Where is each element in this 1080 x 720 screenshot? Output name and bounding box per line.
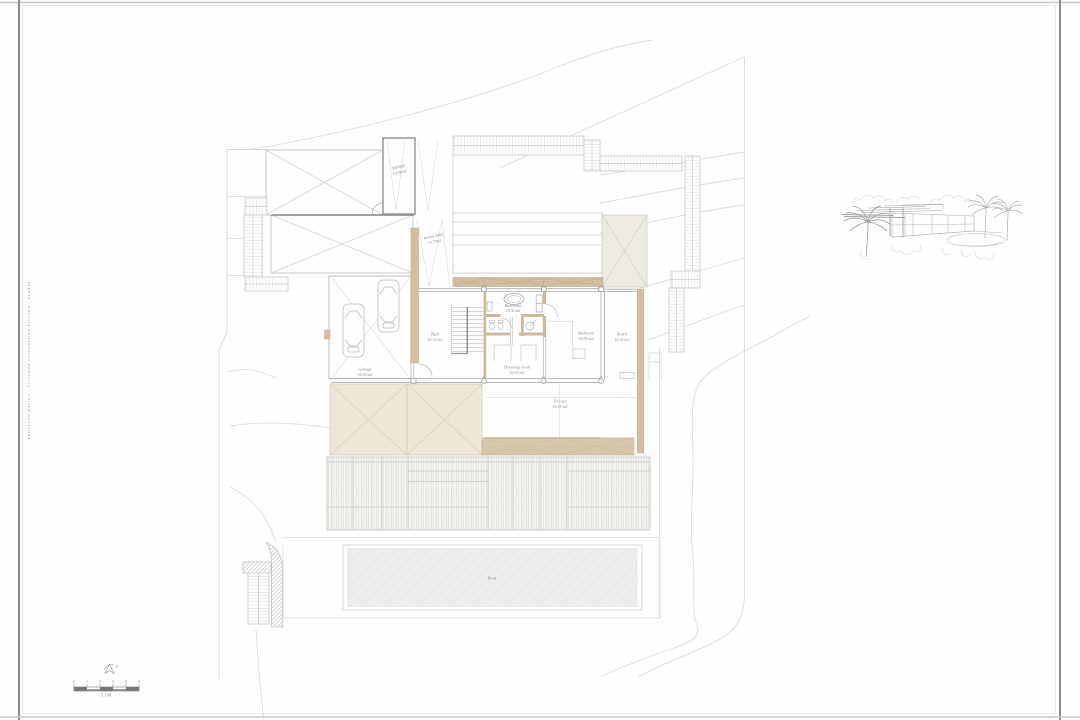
svg-text:Garage: Garage (358, 367, 371, 372)
svg-text:10.10 m2: 10.10 m2 (510, 370, 525, 375)
svg-text:Porch: Porch (616, 332, 628, 337)
svg-text:N: N (115, 664, 119, 669)
svg-text:2: 2 (99, 679, 101, 684)
svg-text:16.35 m2: 16.35 m2 (615, 337, 630, 342)
svg-text:10.32 m2: 10.32 m2 (428, 337, 443, 342)
svg-text:3: 3 (112, 679, 114, 684)
svg-text:33.55 m2: 33.55 m2 (579, 336, 594, 341)
svg-text:35.50 m2: 35.50 m2 (358, 372, 373, 377)
svg-text:1:100: 1:100 (101, 693, 112, 698)
svg-text:Hall: Hall (430, 332, 440, 337)
svg-text:Bathroom: Bathroom (505, 303, 522, 308)
svg-text:0: 0 (73, 679, 75, 684)
svg-text:PROYECTO BASICO - VIVIENDA UNI: PROYECTO BASICO - VIVIENDA UNIFAMILIAR A… (27, 281, 31, 441)
svg-text:1: 1 (86, 679, 88, 684)
svg-text:Pool: Pool (487, 576, 497, 581)
svg-text:Bedroom: Bedroom (578, 331, 594, 336)
svg-text:30.45 m2: 30.45 m2 (553, 404, 568, 409)
svg-text:5: 5 (138, 679, 140, 684)
svg-text:10.30 m2: 10.30 m2 (506, 309, 521, 313)
svg-text:Terrace: Terrace (553, 399, 567, 404)
svg-text:4: 4 (125, 679, 127, 684)
svg-text:Dressing room: Dressing room (503, 365, 530, 370)
